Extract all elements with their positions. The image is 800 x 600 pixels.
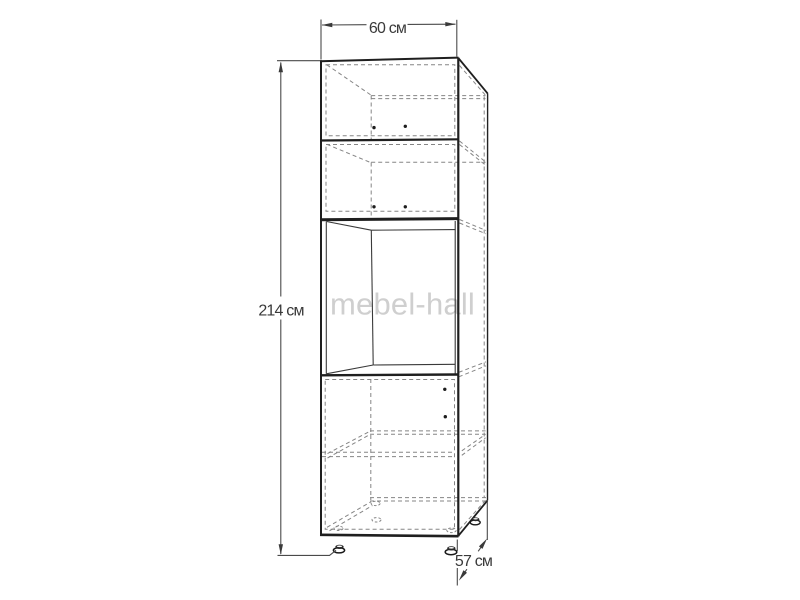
svg-text:57 см: 57 см bbox=[455, 553, 492, 570]
svg-text:mebel-hall: mebel-hall bbox=[330, 286, 475, 321]
svg-text:214 см: 214 см bbox=[258, 303, 303, 320]
svg-text:60 см: 60 см bbox=[369, 20, 406, 37]
